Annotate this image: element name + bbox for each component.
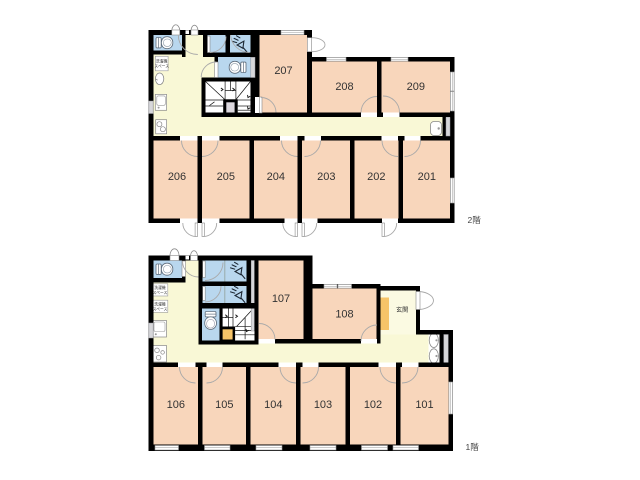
svg-text:204: 204 xyxy=(267,171,285,183)
svg-text:玄関: 玄関 xyxy=(396,306,408,314)
svg-text:洗濯機: 洗濯機 xyxy=(156,59,168,64)
svg-text:洗濯機: 洗濯機 xyxy=(154,302,166,307)
svg-text:104: 104 xyxy=(264,399,282,411)
svg-text:207: 207 xyxy=(274,65,292,77)
svg-text:108: 108 xyxy=(335,308,353,320)
svg-text:スペース: スペース xyxy=(154,63,169,68)
svg-text:スペース: スペース xyxy=(153,306,168,311)
svg-text:洗濯機: 洗濯機 xyxy=(154,285,166,290)
svg-text:102: 102 xyxy=(364,399,382,411)
svg-text:105: 105 xyxy=(215,399,233,411)
svg-text:202: 202 xyxy=(367,171,385,183)
svg-text:106: 106 xyxy=(167,399,185,411)
svg-text:205: 205 xyxy=(217,171,235,183)
svg-text:203: 203 xyxy=(317,171,335,183)
svg-text:107: 107 xyxy=(272,293,290,305)
svg-text:201: 201 xyxy=(418,171,436,183)
svg-text:1階: 1階 xyxy=(466,442,480,452)
svg-text:101: 101 xyxy=(415,399,433,411)
svg-text:103: 103 xyxy=(314,399,332,411)
svg-text:208: 208 xyxy=(335,81,353,93)
svg-text:206: 206 xyxy=(168,171,186,183)
svg-text:209: 209 xyxy=(407,81,425,93)
svg-text:2階: 2階 xyxy=(468,215,482,225)
svg-text:スペース: スペース xyxy=(153,290,168,295)
